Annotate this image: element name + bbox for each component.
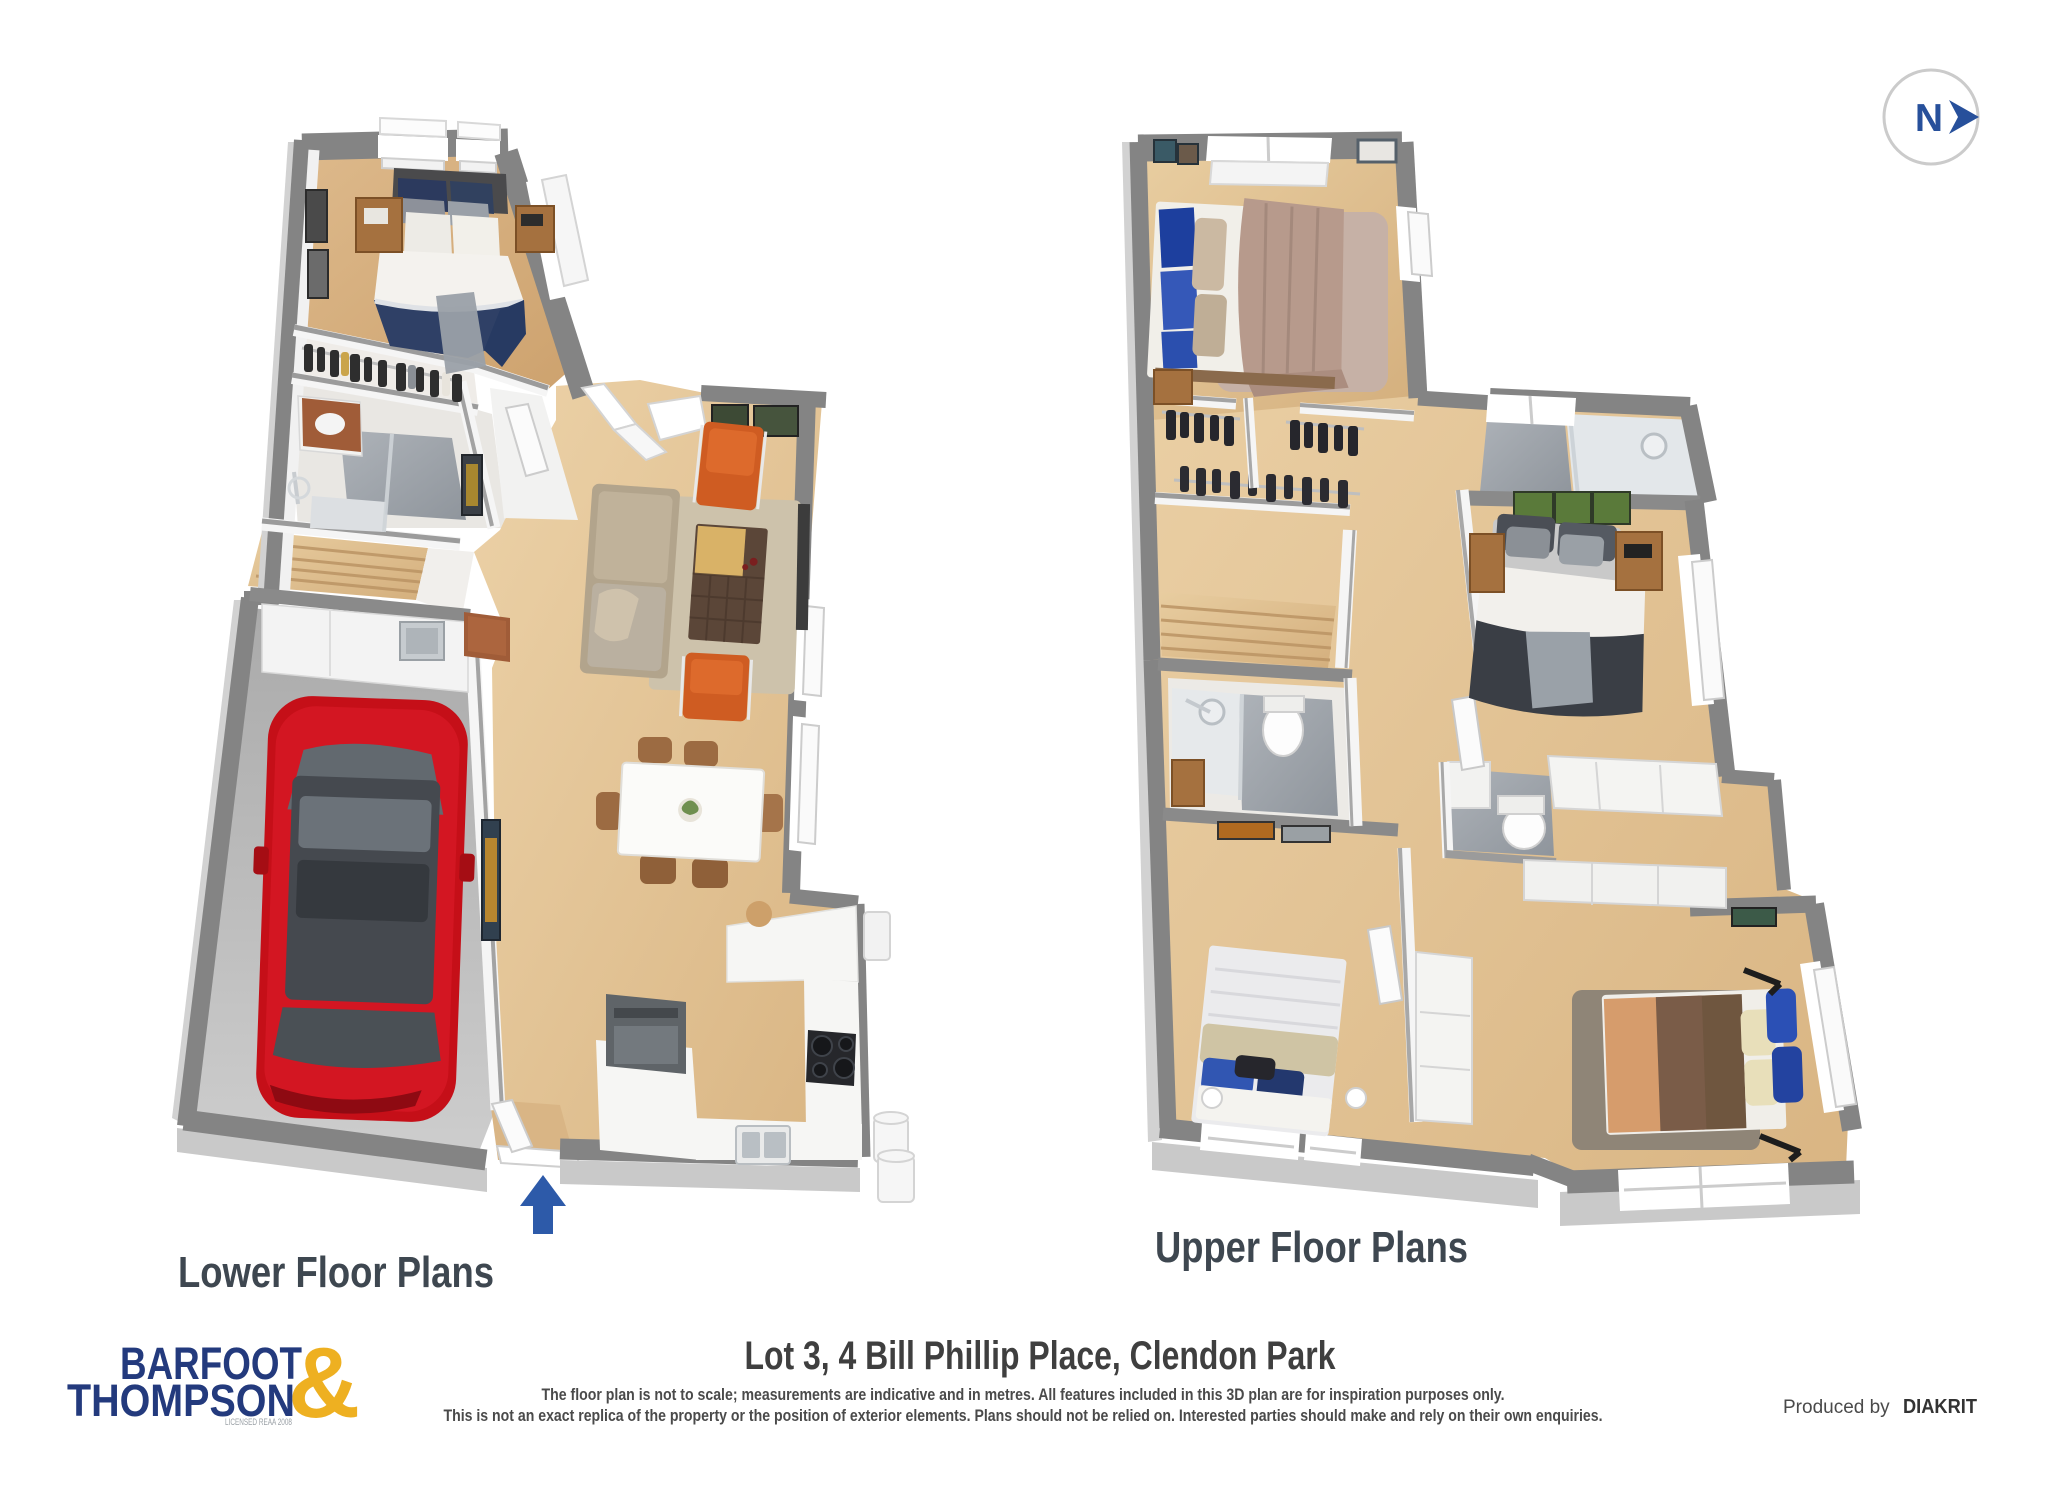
svg-text:N: N bbox=[1915, 97, 1943, 140]
svg-text:Upper Floor Plans: Upper Floor Plans bbox=[1155, 1223, 1468, 1272]
svg-text:The floor plan is not to scale: The floor plan is not to scale; measurem… bbox=[542, 1385, 1505, 1404]
svg-text:Lower Floor Plans: Lower Floor Plans bbox=[178, 1248, 494, 1297]
svg-text:LICENSED REAA 2008: LICENSED REAA 2008 bbox=[225, 1417, 292, 1427]
svg-text:DIAKRIT: DIAKRIT bbox=[1903, 1396, 1977, 1418]
svg-text:Lot 3, 4 Bill Phillip Place, C: Lot 3, 4 Bill Phillip Place, Clendon Par… bbox=[745, 1334, 1337, 1378]
svg-text:&: & bbox=[288, 1327, 360, 1439]
svg-text:Produced by: Produced by bbox=[1783, 1397, 1890, 1418]
svg-text:This is not an exact replica o: This is not an exact replica of the prop… bbox=[444, 1406, 1603, 1425]
